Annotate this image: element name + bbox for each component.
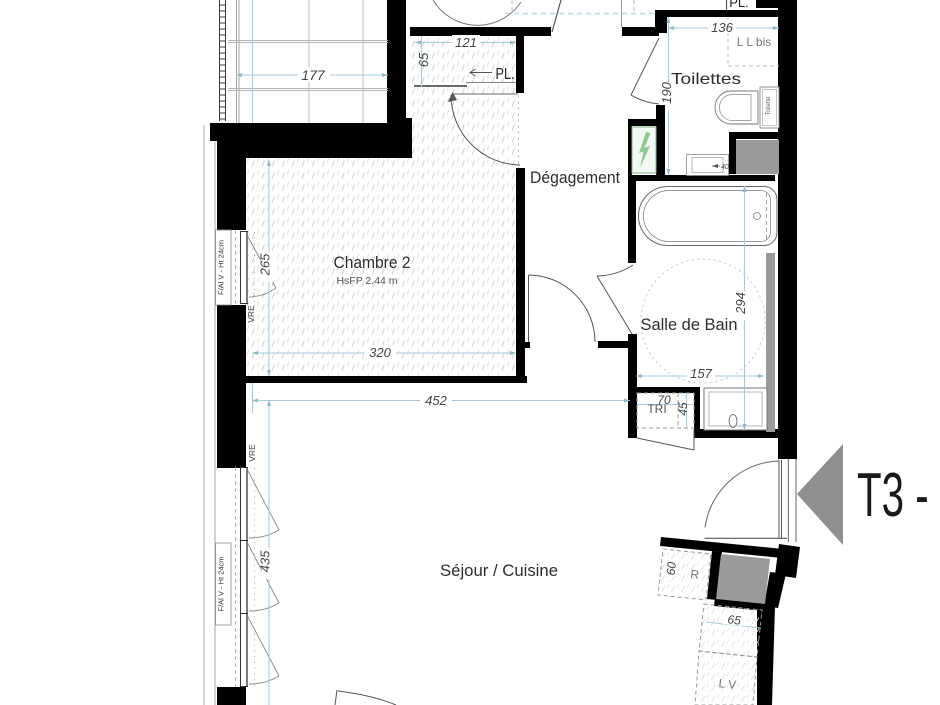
svg-text:F/Al V - Ht 24cm: F/Al V - Ht 24cm xyxy=(217,556,226,611)
svg-text:136: 136 xyxy=(711,20,733,35)
svg-text:121: 121 xyxy=(455,35,477,50)
svg-text:265: 265 xyxy=(258,253,273,276)
svg-text:320: 320 xyxy=(369,345,391,360)
svg-text:452: 452 xyxy=(425,393,447,408)
svg-text:294: 294 xyxy=(733,292,748,315)
svg-text:L L bis: L L bis xyxy=(737,35,771,49)
svg-text:VRE: VRE xyxy=(246,305,256,323)
svg-text:TRI: TRI xyxy=(647,402,666,416)
svg-text:157: 157 xyxy=(690,366,712,381)
svg-text:Toilettes: Toilettes xyxy=(671,71,741,88)
svg-text:F/Al V - Ht 24cm: F/Al V - Ht 24cm xyxy=(217,240,226,295)
svg-text:VRE: VRE xyxy=(247,444,257,462)
svg-text:435: 435 xyxy=(258,550,273,572)
svg-text:40: 40 xyxy=(721,164,729,171)
svg-text:45: 45 xyxy=(676,402,690,416)
svg-text:Toilette: Toilette xyxy=(766,96,772,116)
svg-text:Séjour / Cuisine: Séjour / Cuisine xyxy=(440,561,558,580)
svg-text:HsFP 2.44 m: HsFP 2.44 m xyxy=(336,275,397,287)
svg-text:60: 60 xyxy=(664,561,679,576)
svg-text:R: R xyxy=(690,567,700,582)
svg-text:Chambre 2: Chambre 2 xyxy=(334,253,411,272)
svg-text:PL.: PL. xyxy=(496,66,515,83)
svg-text:Salle de Bain: Salle de Bain xyxy=(641,315,738,334)
svg-text:65: 65 xyxy=(416,52,431,67)
svg-text:177: 177 xyxy=(301,67,326,83)
svg-text:Dégagement: Dégagement xyxy=(530,168,620,187)
svg-text:65: 65 xyxy=(727,612,742,627)
svg-text:L V: L V xyxy=(718,676,737,692)
svg-text:T3 -: T3 - xyxy=(857,461,929,530)
svg-text:PL.: PL. xyxy=(729,0,749,10)
